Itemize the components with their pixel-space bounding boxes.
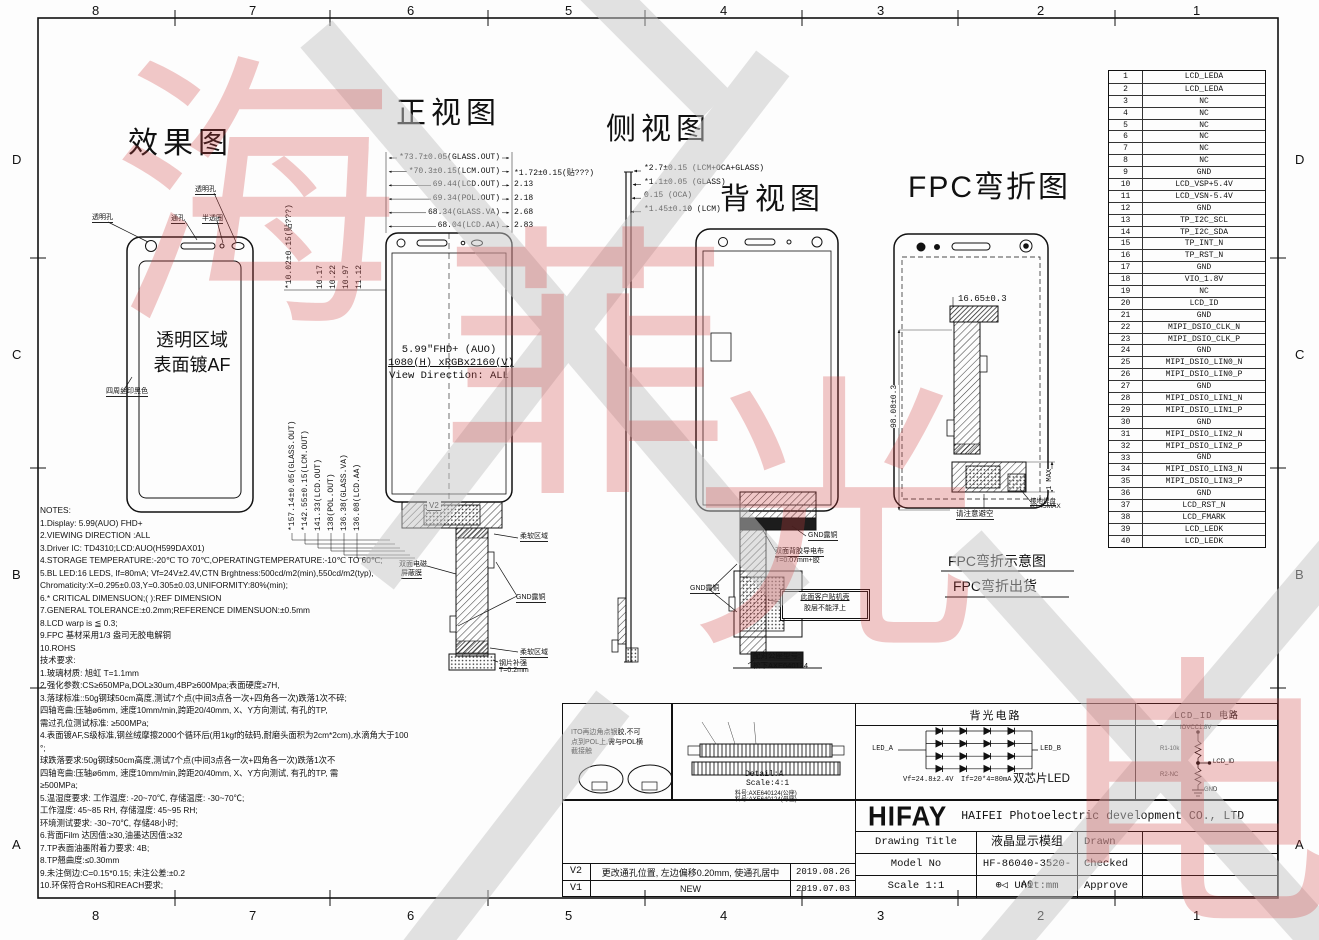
fpc-dim-height: 98.08±0.3: [890, 385, 899, 428]
revision-date: 2019.07.03: [790, 881, 855, 897]
side-view-title: 侧视图: [606, 104, 711, 148]
pin-signal-name: MIPI_DSIO_LIN1_P: [1143, 406, 1265, 415]
model-no-value: HF-86040-3520-A0: [977, 854, 1078, 875]
pin-number: 17: [1109, 262, 1143, 273]
pin-signal-name: MIPI_DSIO_LIN3_N: [1143, 465, 1265, 474]
pin-table-row: 29 MIPI_DSIO_LIN1_P: [1109, 404, 1265, 416]
grid-col-label: 4: [720, 3, 727, 18]
fpc-label-pad-2: ø3.45MAX: [1030, 503, 1061, 510]
pin-number: 32: [1109, 441, 1143, 452]
pin-signal-name: NC: [1143, 132, 1265, 141]
pin-number: 35: [1109, 476, 1143, 487]
pin-number: 37: [1109, 500, 1143, 511]
pin-number: 14: [1109, 227, 1143, 238]
revision-description: NEW: [591, 884, 790, 894]
note-line: 5.BL LED:16 LEDS, If=80mA; Vf=24V±2.4V,C…: [40, 567, 374, 580]
pin-signal-name: LCD_FMARK: [1143, 513, 1265, 522]
front-left-dim: 10.97: [342, 265, 351, 289]
panel-resolution-line: 1080(H) xRGBx2160(V): [388, 357, 510, 370]
back-label-tape-2: T=0.07mm+胶: [775, 555, 820, 565]
pin-signal-name: MIPI_DSIO_CLK_N: [1143, 323, 1265, 332]
pin-table-row: 32 MIPI_DSIO_LIN2_P: [1109, 440, 1265, 452]
pin-number: 8: [1109, 155, 1143, 166]
pin-signal-name: GND: [1143, 489, 1265, 498]
pin-table-row: 16 TP_RST_N: [1109, 249, 1265, 261]
pin-number: 34: [1109, 464, 1143, 475]
note-line: 四轴弯曲:压轴ø6mm, 速度10mm/min,跨距20/40mm, X、Y方向…: [40, 704, 374, 717]
backlight-circuit-cell: 背光电路: [855, 703, 1136, 800]
pin-number: 19: [1109, 286, 1143, 297]
side-dimension: *1.45±0.10 (LCM): [644, 205, 764, 219]
pin-number: 21: [1109, 310, 1143, 321]
front-fpc-label-stiffener-2: T=0.2mm: [499, 667, 529, 674]
pin-table-row: 11 LCD_VSN-5.4V: [1109, 190, 1265, 202]
note-line: 2.强化参数:CS≥650MPa,DOL≥30um,4BP≥600Mpa;表面硬…: [40, 679, 374, 692]
ito-note-line: 点到POL上,需与POL横: [571, 738, 671, 748]
dimension-row: 68.34(GLASS.VA) 2.68: [320, 206, 580, 220]
pin-number: 3: [1109, 96, 1143, 107]
pin-table-row: 35 MIPI_DSIO_LIN3_P: [1109, 475, 1265, 487]
grid-col-label: 8: [92, 3, 99, 18]
pin-table-row: 37 LCD_RST_N: [1109, 499, 1265, 511]
effect-label-transparent-hole-left: 透明孔: [92, 212, 113, 223]
pin-table-row: 17 GND: [1109, 261, 1265, 273]
pin-table-row: 28 MIPI_DSIO_LIN1_N: [1109, 392, 1265, 404]
pin-signal-name: GND: [1143, 346, 1265, 355]
pin-signal-name: GND: [1143, 453, 1265, 462]
grid-col-label: 4: [720, 908, 727, 923]
pin-table-row: 22 MIPI_DSIO_CLK_N: [1109, 321, 1265, 333]
pin-signal-name: NC: [1143, 144, 1265, 153]
front-view-title: 正视图: [396, 88, 501, 132]
title-block-row: Scale 1:1 ⊕◁ Unit:mm Approve: [856, 876, 1277, 898]
ito-note-text: ITO再边角点银胶,不可 点到POL上,需与POL横 截接触: [571, 728, 671, 757]
revision-date: 2019.08.26: [790, 864, 855, 880]
pin-assignment-table: 1 LCD_LEDA 2 LCD_LEDA 3 NC 4 NC 5 NC 6 N…: [1108, 70, 1266, 548]
note-line: 四轴弯曲:压轴ø6mm, 速度10mm/min,跨距20/40mm, X、Y方向…: [40, 767, 374, 780]
pin-table-row: 4 NC: [1109, 107, 1265, 119]
pin-number: 20: [1109, 298, 1143, 309]
note-line: NOTES:: [40, 504, 374, 517]
grid-row-label: D: [12, 152, 21, 167]
grid-row-label: B: [1295, 567, 1304, 582]
back-label-gnd-top: GND露铜: [808, 530, 838, 541]
note-line: 5.温湿度要求: 工作温度: -20~70℃, 存储温度: -30~70℃;: [40, 792, 374, 805]
pin-number: 28: [1109, 393, 1143, 404]
pin-table-row: 24 GND: [1109, 344, 1265, 356]
dimension-row: *73.7±0.05(GLASS.OUT): [320, 151, 580, 165]
approve-label: Approve: [1078, 876, 1143, 898]
title-block-row: Drawing Title 液晶显示模组 Drawn: [856, 832, 1277, 854]
note-line: 7.GENERAL TOLERANCE:±0.2mm;REFERENCE DIM…: [40, 604, 374, 617]
projection-symbol-icon: ⊕◁: [995, 880, 1008, 892]
unit-text: Unit:mm: [1014, 880, 1058, 892]
backlight-vf-spec: Vf=24.8±2.4V: [903, 776, 953, 784]
pin-table-row: 8 NC: [1109, 154, 1265, 166]
grid-col-label: 7: [249, 3, 256, 18]
pin-signal-name: GND: [1143, 311, 1265, 320]
lcdid-r1-label: R1-10k: [1160, 746, 1179, 752]
pin-signal-name: MIPI_DSIO_LIN0_P: [1143, 370, 1265, 379]
effect-label-through-hole: 通孔: [171, 213, 185, 224]
pin-number: 13: [1109, 215, 1143, 226]
pin-signal-name: NC: [1143, 109, 1265, 118]
note-line: 技术要求:: [40, 654, 374, 667]
lcdid-vio-label: IOVCC1.8V: [1180, 725, 1211, 731]
backlight-if-spec: If=20*4=80mA: [961, 776, 1011, 784]
pin-signal-name: NC: [1143, 287, 1265, 296]
pin-number: 15: [1109, 238, 1143, 249]
pin-table-row: 25 MIPI_DSIO_LIN0_N: [1109, 356, 1265, 368]
lcdid-r2-label: R2-NC: [1160, 772, 1178, 778]
dimension-right-value: 2.18: [514, 194, 533, 203]
dimension-row: 69.44(LCD.OUT) 2.13: [320, 178, 580, 192]
pin-table-row: 18 VIO_1.8V: [1109, 273, 1265, 285]
title-block-logo-row: HIFAY HAIFEI Photoelectric development C…: [856, 801, 1277, 832]
ito-note-line: 截接触: [571, 747, 671, 757]
pin-table-row: 27 GND: [1109, 380, 1265, 392]
effect-area-line2: 表面镀AF: [146, 353, 238, 378]
grid-col-label: 3: [877, 908, 884, 923]
fpc-label-avoid: 请注意避空: [956, 508, 994, 520]
pin-table-row: 12 GND: [1109, 202, 1265, 214]
note-line: 8.LCD warp is ≦ 0.3;: [40, 617, 374, 630]
revision-id: V1: [562, 881, 591, 897]
grid-row-label: C: [12, 347, 21, 362]
grid-col-label: 1: [1193, 908, 1200, 923]
pin-signal-name: MIPI_DSIO_LIN2_P: [1143, 442, 1265, 451]
pin-table-row: 23 MIPI_DSIO_CLK_P: [1109, 333, 1265, 345]
note-line: 8.TP翘曲度:≤0.30mm: [40, 854, 374, 867]
pin-table-row: 15 TP_INT_N: [1109, 237, 1265, 249]
grid-col-label: 8: [92, 908, 99, 923]
pin-number: 2: [1109, 84, 1143, 95]
grid-row-label: A: [12, 837, 21, 852]
dimension-label: 68.04(LCD.AA): [436, 221, 502, 230]
note-line: 9.FPC 基材采用1/3 盎司无胶电解铜: [40, 629, 374, 642]
pin-signal-name: LCD_LEDA: [1143, 85, 1265, 94]
effect-transparent-area-text: 透明区域 表面镀AF: [146, 328, 238, 378]
dimension-right-value: 2.68: [514, 208, 533, 217]
back-label-gnd-left: GND露铜: [690, 583, 720, 594]
effect-area-line1: 透明区域: [146, 328, 238, 353]
backlight-led-b-label: LED_B: [1040, 745, 1061, 753]
pin-number: 10: [1109, 179, 1143, 190]
front-left-dim: 10.22: [329, 265, 338, 289]
pin-number: 39: [1109, 524, 1143, 535]
dimension-row: *70.3±0.15(LCM.OUT) *1.72±0.15(贴???): [320, 165, 580, 179]
pin-table-row: 1 LCD_LEDA: [1109, 71, 1265, 83]
fpc-dim-width: 16.65±0.3: [956, 294, 1009, 304]
pin-table-row: 7 NC: [1109, 142, 1265, 154]
pin-number: 33: [1109, 453, 1143, 464]
note-line: ≥500MPa;: [40, 779, 374, 792]
pin-table-row: 9 GND: [1109, 166, 1265, 178]
note-line: 3.落球标准::50g钢球50cm高度,测试7个点(中间3点各一次+四角各一次)…: [40, 692, 374, 705]
scale-label: Scale 1:1: [856, 876, 977, 898]
backlight-circuit-title: 背光电路: [970, 707, 1022, 723]
note-line: 环境测试要求: -30~70℃, 存储48小时;: [40, 817, 374, 830]
pin-signal-name: LCD_RST_N: [1143, 501, 1265, 510]
pin-number: 24: [1109, 345, 1143, 356]
pin-signal-name: TP_I2C_SCL: [1143, 216, 1265, 225]
dimension-right-value: 2.83: [514, 221, 533, 230]
note-line: 球跌落要求:50g钢球50cm高度,测试7个点(中间3点各一次+四角各一次)跌落…: [40, 754, 374, 767]
pin-table-row: 30 GND: [1109, 416, 1265, 428]
note-line: 3.Driver IC: TD4310;LCD:AUO(H599DAX01): [40, 542, 374, 555]
dimension-right-value: 2.13: [514, 180, 533, 189]
pin-table-row: 34 MIPI_DSIO_LIN3_N: [1109, 463, 1265, 475]
note-line: 6.背面Film 达因值:≥30,油墨达因值:≥32: [40, 829, 374, 842]
pin-table-row: 20 LCD_ID: [1109, 297, 1265, 309]
pin-number: 38: [1109, 512, 1143, 523]
dimension-label: *73.7±0.05(GLASS.OUT): [397, 153, 502, 162]
note-line: 10.ROHS: [40, 642, 374, 655]
pin-signal-name: LCD_ID: [1143, 299, 1265, 308]
front-left-dim: 10.17: [316, 265, 325, 289]
pin-number: 40: [1109, 536, 1143, 547]
pin-table-row: 5 NC: [1109, 119, 1265, 131]
grid-col-label: 2: [1037, 3, 1044, 18]
note-line: 工作湿度: 45~85 RH, 存储湿度: 45~95 RH;: [40, 804, 374, 817]
grid-col-label: 5: [565, 3, 572, 18]
pin-signal-name: MIPI_DSIO_CLK_P: [1143, 335, 1265, 344]
pin-number: 6: [1109, 131, 1143, 142]
backlight-circuit-header: 背光电路: [856, 704, 1135, 726]
company-name: HAIFEI Photoelectric development CO., LT…: [961, 810, 1244, 823]
grid-col-label: 5: [565, 908, 572, 923]
pin-signal-name: NC: [1143, 156, 1265, 165]
side-view-drawing: [612, 171, 641, 662]
lcdid-output-label: LCD_ID: [1213, 759, 1234, 765]
note-line: 4.表面镀AF,S级标准,钢丝绒摩擦2000个循环后(用1kgf的砝码,耐磨头面…: [40, 729, 374, 742]
pin-number: 18: [1109, 274, 1143, 285]
side-dimension: 0.15 (OCA): [644, 191, 764, 205]
pin-signal-name: LCD_VSP+5.4V: [1143, 180, 1265, 189]
title-block-row: Model No HF-86040-3520-A0 Checked: [856, 854, 1277, 876]
dimension-row: 69.34(POL.OUT) 2.18: [320, 192, 580, 206]
front-fpc-label-soft-bottom: 柔软区域: [520, 647, 548, 658]
effect-label-black-silkscreen: 四周丝印黑色: [106, 386, 148, 397]
pin-signal-name: LCD_LEDK: [1143, 537, 1265, 546]
pin-signal-name: NC: [1143, 121, 1265, 130]
backlight-chip-label: 双芯片LED: [1013, 770, 1070, 786]
pin-table-row: 36 GND: [1109, 487, 1265, 499]
note-line: °;: [40, 742, 374, 755]
grid-col-label: 1: [1193, 3, 1200, 18]
panel-view-direction-line: View Direction: ALL: [388, 370, 510, 383]
pin-signal-name: LCD_LEDK: [1143, 525, 1265, 534]
pin-table-row: 31 MIPI_DSIO_LIN2_N: [1109, 428, 1265, 440]
panel-size-line: 5.99"FHD+ (AUO): [388, 344, 510, 357]
pin-number: 22: [1109, 322, 1143, 333]
pin-number: 9: [1109, 167, 1143, 178]
fpc-caption-schematic: FPC弯折示意图: [948, 551, 1046, 571]
pin-table-row: 3 NC: [1109, 95, 1265, 107]
note-line: 10.环保符合RoHS和REACH要求;: [40, 879, 374, 892]
pin-signal-name: TP_INT_N: [1143, 239, 1265, 248]
front-panel-spec-text: 5.99"FHD+ (AUO) 1080(H) xRGBx2160(V) Vie…: [388, 344, 510, 383]
ito-note-cell: ITO再边角点银胶,不可 点到POL上,需与POL横 截接触: [562, 703, 672, 800]
grid-row-label: C: [1295, 347, 1304, 362]
front-fpc-label-gnd: GND露铜: [516, 592, 546, 603]
grid-col-label: 2: [1037, 908, 1044, 923]
pin-number: 31: [1109, 429, 1143, 440]
pin-number: 1: [1109, 71, 1143, 83]
pin-number: 25: [1109, 357, 1143, 368]
front-revision-marker: V2: [427, 501, 441, 511]
note-line: 1.玻璃材质: 旭虹 T=1.1mm: [40, 667, 374, 680]
front-fpc-drawing: [402, 502, 518, 670]
effect-label-semi-ring: 半透圈: [202, 213, 223, 224]
pin-signal-name: GND: [1143, 382, 1265, 391]
pin-number: 29: [1109, 405, 1143, 416]
front-left-dim: *10.02±0.15(贴???): [283, 204, 294, 289]
pin-table-row: 6 NC: [1109, 130, 1265, 142]
pin-signal-name: MIPI_DSIO_LIN3_P: [1143, 477, 1265, 486]
lcdid-gnd-label: GND: [1204, 787, 1217, 793]
pin-table-row: 40 LCD_LEDK: [1109, 535, 1265, 547]
pin-table-row: 38 LCD_FMARK: [1109, 511, 1265, 523]
pin-number: 27: [1109, 381, 1143, 392]
pin-number: 26: [1109, 369, 1143, 380]
side-view-dimensions: *2.7±0.15 (LCM+OCA+GLASS)*1.1±0.05 (GLAS…: [644, 164, 764, 218]
pin-signal-name: GND: [1143, 418, 1265, 427]
note-line: 4.STORAGE TEMPERATURE:-20℃ TO 70℃,OPERAT…: [40, 554, 374, 567]
pin-signal-name: GND: [1143, 263, 1265, 272]
pin-signal-name: MIPI_DSIO_LIN0_N: [1143, 358, 1265, 367]
engineering-drawing-sheet: 8 7 6 5 4 3 2 1 8 7 6 5 4 3 2 1 D C B A …: [0, 0, 1319, 940]
model-no-label: Model No: [856, 854, 977, 875]
dimension-label: 69.34(POL.OUT): [431, 194, 502, 203]
pin-signal-name: TP_I2C_SDA: [1143, 228, 1265, 237]
notes-block: NOTES:1.Display: 5.99(AUO) FHD+2.VIEWING…: [40, 504, 374, 892]
pin-signal-name: LCD_VSN-5.4V: [1143, 192, 1265, 201]
grid-row-label: A: [1295, 837, 1304, 852]
drawing-title-value: 液晶显示模组: [977, 832, 1078, 853]
drawn-label: Drawn: [1078, 832, 1143, 853]
dimension-label: 69.44(LCD.OUT): [431, 180, 502, 189]
effect-view-title: 效果图: [128, 118, 233, 162]
note-line: 2.VIEWING DIRECTION :ALL: [40, 529, 374, 542]
back-note-line2: 胶层不能浮上: [783, 603, 867, 614]
dimension-right-value: *1.72±0.15(贴???): [514, 167, 594, 178]
back-note-line1: 此面客户贴机壳: [783, 592, 867, 603]
ito-note-line: ITO再边角点银胶,不可: [571, 728, 671, 738]
side-dimension: *1.1±0.05 (GLASS): [644, 178, 764, 192]
revision-row: V2 更改通孔位置, 左边偏移0.20mm, 使通孔居中 2019.08.26: [562, 863, 855, 880]
back-customer-note-box: 此面客户贴机壳 胶层不能浮上: [782, 591, 868, 619]
pin-signal-name: MIPI_DSIO_LIN1_N: [1143, 394, 1265, 403]
pin-number: 16: [1109, 250, 1143, 261]
pin-table-row: 14 TP_I2C_SDA: [1109, 226, 1265, 238]
checked-label: Checked: [1078, 854, 1143, 875]
unit-value: ⊕◁ Unit:mm: [977, 876, 1078, 898]
lcdid-circuit-title: LCD_ID 电路: [1174, 708, 1239, 721]
note-line: 1.Display: 5.99(AUO) FHD+: [40, 517, 374, 530]
note-line: 6.* CRITICAL DIMENSUON;( ):REF DIMENSION: [40, 592, 374, 605]
grid-row-label: D: [1295, 152, 1304, 167]
pin-table-row: 19 NC: [1109, 285, 1265, 297]
grid-col-label: 3: [877, 3, 884, 18]
revision-id: V2: [562, 864, 591, 880]
pin-number: 11: [1109, 191, 1143, 202]
pin-table-row: 13 TP_I2C_SCL: [1109, 214, 1265, 226]
fpc-dim-max: 1 MAX: [1046, 469, 1054, 490]
back-label-connector-2: 松下AXE640124: [753, 660, 808, 671]
pin-number: 36: [1109, 488, 1143, 499]
pin-signal-name: GND: [1143, 204, 1265, 213]
pin-table-row: 26 MIPI_DSIO_LIN0_P: [1109, 368, 1265, 380]
pin-table-row: 10 LCD_VSP+5.4V: [1109, 178, 1265, 190]
effect-label-transparent-hole-top: 透明孔: [195, 184, 216, 195]
pin-signal-name: MIPI_DSIO_LIN2_N: [1143, 430, 1265, 439]
title-block: HIFAY HAIFEI Photoelectric development C…: [855, 800, 1278, 897]
note-line: Chromaticity:X=0.295±0.03,Y=0.305±0.03,U…: [40, 579, 374, 592]
side-dimension: *2.7±0.15 (LCM+OCA+GLASS): [644, 164, 764, 178]
pin-signal-name: VIO_1.8V: [1143, 275, 1265, 284]
grid-col-label: 7: [249, 908, 256, 923]
pin-number: 4: [1109, 108, 1143, 119]
front-left-dim: 11.12: [355, 265, 364, 289]
backlight-led-a-label: LED_A: [872, 745, 893, 753]
grid-col-label: 6: [407, 908, 414, 923]
pin-number: 7: [1109, 143, 1143, 154]
pin-signal-name: LCD_LEDA: [1143, 72, 1265, 81]
pin-number: 5: [1109, 120, 1143, 131]
lcdid-circuit-cell: LCD_ID 电路: [1135, 703, 1278, 800]
revision-description: 更改通孔位置, 左边偏移0.20mm, 使通孔居中: [591, 866, 790, 879]
front-fpc-label-shield-2: 屏蔽膜: [401, 568, 422, 579]
front-fpc-label-soft-top: 柔软区域: [520, 531, 548, 542]
dimension-label: *70.3±0.15(LCM.OUT): [407, 167, 502, 176]
fpc-caption-shipping: FPC弯折出货: [953, 576, 1037, 596]
pin-table-row: 39 LCD_LEDK: [1109, 523, 1265, 535]
pin-signal-name: GND: [1143, 168, 1265, 177]
pin-table-row: 33 GND: [1109, 452, 1265, 464]
grid-row-label: B: [12, 567, 21, 582]
note-line: 需过孔位测试标准: ≥500MPa;: [40, 717, 374, 730]
front-top-dimensions: *73.7±0.05(GLASS.OUT) *70.3±0.15(LCM.OUT…: [320, 151, 580, 233]
pin-signal-name: NC: [1143, 97, 1265, 106]
dimension-label: 68.34(GLASS.VA): [426, 208, 502, 217]
lcdid-circuit-header: LCD_ID 电路: [1136, 704, 1277, 726]
drawing-title-label: Drawing Title: [856, 832, 977, 853]
fpc-view-title: FPC弯折图: [908, 162, 1070, 206]
fpc-bend-view-drawing: [894, 234, 1074, 597]
pin-table-row: 2 LCD_LEDA: [1109, 83, 1265, 95]
dimension-row: 68.04(LCD.AA) 2.83: [320, 219, 580, 233]
detail-a-scale: Scale:4:1: [746, 779, 789, 788]
detail-a-title: Detail:A: [745, 770, 783, 779]
pin-number: 23: [1109, 334, 1143, 345]
revision-row: V1 NEW 2019.07.03: [562, 880, 855, 897]
pin-signal-name: TP_RST_N: [1143, 251, 1265, 260]
grid-col-label: 6: [407, 3, 414, 18]
note-line: 7.TP表面油墨附着力要求: 4B;: [40, 842, 374, 855]
pin-table-row: 21 GND: [1109, 309, 1265, 321]
note-line: 9.未注倒边:C=0.15*0.15; 未注公差:±0.2: [40, 867, 374, 880]
company-logo: HIFAY: [868, 800, 947, 833]
pin-number: 30: [1109, 417, 1143, 428]
pin-number: 12: [1109, 203, 1143, 214]
